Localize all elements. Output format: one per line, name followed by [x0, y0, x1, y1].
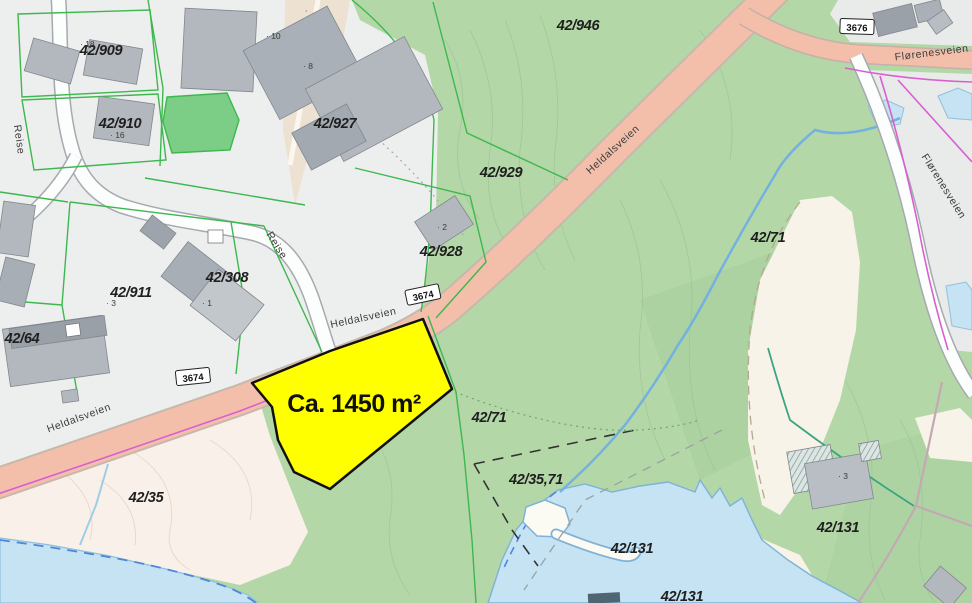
map-viewport[interactable]: 42/90942/91042/92742/94642/92942/92842/3…: [0, 0, 972, 603]
road-number-badge: 3676: [840, 18, 875, 34]
road-number-badge: 3674: [175, 367, 210, 385]
green-parcel: [163, 93, 239, 153]
map-canvas[interactable]: 42/90942/91042/92742/94642/92942/92842/3…: [0, 0, 972, 603]
boathouse: [588, 592, 620, 603]
